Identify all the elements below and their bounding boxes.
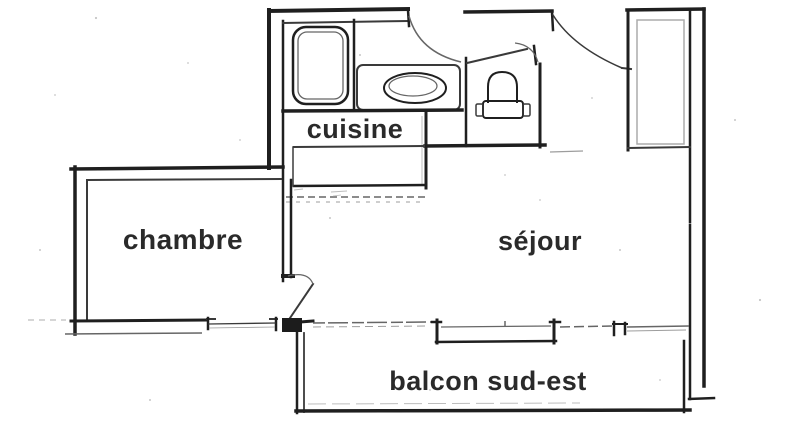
closet-icon	[628, 12, 690, 150]
wc-bottom-wall	[425, 145, 545, 146]
kitchen-counter-icon	[293, 146, 426, 186]
bedroom-door-arc-icon	[288, 275, 313, 318]
entrance-threshold	[550, 151, 583, 152]
wc-angled-wall	[467, 49, 527, 63]
living-room-window-pier	[613, 322, 627, 335]
balcony-door-icon	[432, 320, 560, 343]
bathroom-inner-top-wall	[283, 21, 408, 23]
living-room-windows	[300, 320, 689, 343]
bathroom	[283, 10, 462, 111]
bedroom-bottom-wall	[71, 320, 207, 321]
wall-pier	[282, 318, 302, 332]
room-label-chambre: chambre	[123, 224, 243, 255]
room-label-balcon: balcon sud-est	[389, 366, 587, 396]
floor-plan: cuisine chambre séjour balcon sud-est	[0, 0, 800, 431]
entrance-door-arc-icon	[553, 15, 622, 68]
toilet-icon	[476, 72, 530, 118]
bathroom-bottom-wall	[283, 110, 462, 111]
washbasin-icon	[357, 65, 460, 110]
bathroom-door-arc-icon	[409, 16, 461, 62]
bedroom-top-wall	[71, 167, 283, 169]
bedroom-window-icon	[207, 318, 277, 330]
balcony-railing	[296, 410, 690, 411]
room-label-cuisine: cuisine	[307, 114, 404, 144]
room-label-sejour: séjour	[498, 226, 582, 256]
entrance	[550, 12, 631, 152]
bathtub-icon	[293, 27, 348, 104]
